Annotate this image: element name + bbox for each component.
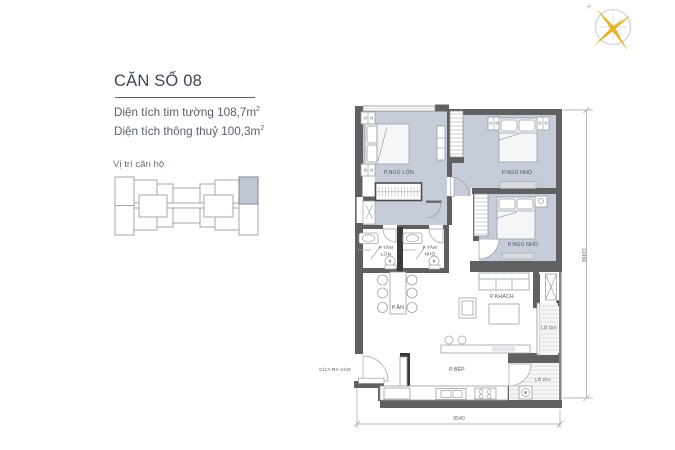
svg-text:12496: 12496 — [580, 248, 586, 263]
svg-text:LÔ GIA: LÔ GIA — [535, 377, 551, 382]
svg-text:CỬA RA VÀO: CỬA RA VÀO — [319, 366, 351, 373]
svg-text:P.TẮM: P.TẮM — [423, 243, 437, 250]
svg-text:P.ĂN: P.ĂN — [392, 304, 404, 311]
svg-text:P.NGỦ LỚN: P.NGỦ LỚN — [384, 169, 414, 176]
svg-text:P.NGỦ NHỎ: P.NGỦ NHỎ — [502, 169, 533, 176]
svg-text:P.BẾP: P.BẾP — [449, 366, 465, 373]
svg-text:NHỎ: NHỎ — [425, 251, 436, 257]
svg-text:P.NGỦ NHỎ: P.NGỦ NHỎ — [508, 241, 539, 248]
svg-text:P.TẮM: P.TẮM — [379, 243, 393, 250]
svg-text:P.KHÁCH: P.KHÁCH — [490, 293, 514, 300]
svg-text:LỚN: LỚN — [381, 251, 391, 257]
svg-text:LÔ GIA: LÔ GIA — [541, 325, 557, 330]
svg-text:8540: 8540 — [453, 416, 465, 422]
svg-text:N: N — [586, 3, 593, 10]
